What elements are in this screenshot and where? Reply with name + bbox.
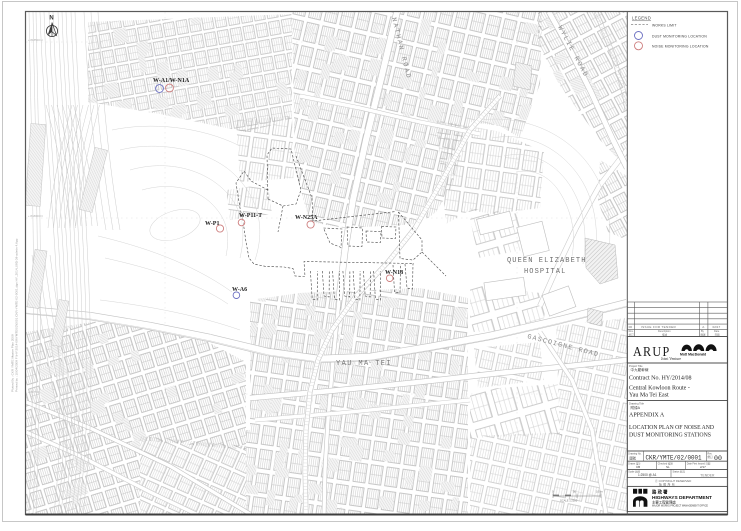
svg-text:MAJOR WORKS PROJECT MANAGEMENT: MAJOR WORKS PROJECT MANAGEMENT OFFICE <box>652 505 708 508</box>
svg-text:附錄A: 附錄A <box>631 405 641 410</box>
svg-text:WORKS LIMIT: WORKS LIMIT <box>652 23 677 27</box>
svg-text:版權所有: 版權所有 <box>659 482 676 486</box>
svg-text:APPENDIX A: APPENDIX A <box>629 413 665 419</box>
svg-text:DUST MONITORING LOCATION: DUST MONITORING LOCATION <box>652 34 707 38</box>
svg-text:1:2500 @ A1: 1:2500 @ A1 <box>638 473 657 477</box>
svg-text:W-A1/W-N1A: W-A1/W-N1A <box>153 78 190 84</box>
svg-text:CB: CB <box>636 465 640 469</box>
svg-text:00: 00 <box>714 455 722 462</box>
svg-text:LOCATION PLAN OF NOISE AND: LOCATION PLAN OF NOISE AND <box>629 425 715 431</box>
svg-text:Printed by : 10/04/2008 F:\H: Printed by : 10/04/2008 F:\HY-2014-08\YM… <box>15 238 19 392</box>
svg-text:W-N25A: W-N25A <box>295 215 318 221</box>
svg-text:W-P1: W-P1 <box>205 221 219 227</box>
svg-text:100m: 100m <box>596 490 604 494</box>
svg-text:2/17: 2/17 <box>700 465 706 469</box>
svg-text:Date First Issued 日期: Date First Issued 日期 <box>687 461 711 465</box>
svg-text:Project Title: Project Title <box>629 364 643 368</box>
svg-text:日期: 日期 <box>715 332 721 336</box>
svg-text:修訂: 修訂 <box>629 332 635 336</box>
svg-text:Plotted By : CKR YMTE Master: Plotted By : CKR YMTE Master Plan 2008 <box>11 334 15 392</box>
svg-text:描述: 描述 <box>662 332 668 336</box>
svg-text:簡署: 簡署 <box>701 332 707 336</box>
svg-text:HIGHWAYS DEPARTMENT: HIGHWAYS DEPARTMENT <box>652 495 712 500</box>
svg-text:50: 50 <box>573 490 577 494</box>
svg-text:CKR/YMTE/02/0001: CKR/YMTE/02/0001 <box>646 454 702 461</box>
svg-text:圖號: 圖號 <box>630 456 637 461</box>
svg-text:02/17: 02/17 <box>713 325 721 329</box>
svg-text:QUEEN ELIZABETH: QUEEN ELIZABETH <box>507 257 587 265</box>
svg-text:W-N18: W-N18 <box>385 270 403 276</box>
svg-text:Central Kowloon Route -: Central Kowloon Route - <box>629 386 690 392</box>
svg-text:ISSUE FOR TENDER: ISSUE FOR TENDER <box>641 325 676 329</box>
svg-text:NOISE MONITORING LOCATION: NOISE MONITORING LOCATION <box>652 45 709 49</box>
svg-text:DUST MONITORING STATIONS: DUST MONITORING STATIONS <box>629 433 711 439</box>
svg-text:N: N <box>49 16 53 22</box>
svg-text:Status 狀況: Status 狀況 <box>673 470 686 474</box>
svg-text:HOSPITAL: HOSPITAL <box>524 268 566 276</box>
svg-text:Mott MacDonald: Mott MacDonald <box>680 353 706 357</box>
svg-text:Contract No. HY/2014/08: Contract No. HY/2014/08 <box>629 376 692 382</box>
svg-text:W-P11-T: W-P11-T <box>239 213 262 219</box>
svg-text:+ 818500 N: + 818500 N <box>28 38 43 42</box>
svg-text:Joint Venture: Joint Venture <box>661 357 681 361</box>
svg-text:Drawing No.: Drawing No. <box>628 453 641 456</box>
svg-text:中九龍幹線: 中九龍幹線 <box>631 367 649 372</box>
svg-text:Yau Ma Tei East: Yau Ma Tei East <box>629 393 669 399</box>
svg-text:Drawing Title: Drawing Title <box>629 402 645 406</box>
svg-text:SCALE 1:2500: SCALE 1:2500 <box>560 499 578 503</box>
svg-text:TENDER: TENDER <box>700 474 715 478</box>
svg-text:00: 00 <box>629 325 633 329</box>
svg-text:YAU MA TEI: YAU MA TEI <box>336 360 392 368</box>
svg-text:+ 818000 N: + 818000 N <box>28 214 43 218</box>
svg-text:修訂: 修訂 <box>708 455 714 459</box>
svg-text:SL: SL <box>666 465 670 469</box>
svg-text:LEGEND: LEGEND <box>632 16 651 21</box>
svg-text:W-A6: W-A6 <box>232 287 247 293</box>
